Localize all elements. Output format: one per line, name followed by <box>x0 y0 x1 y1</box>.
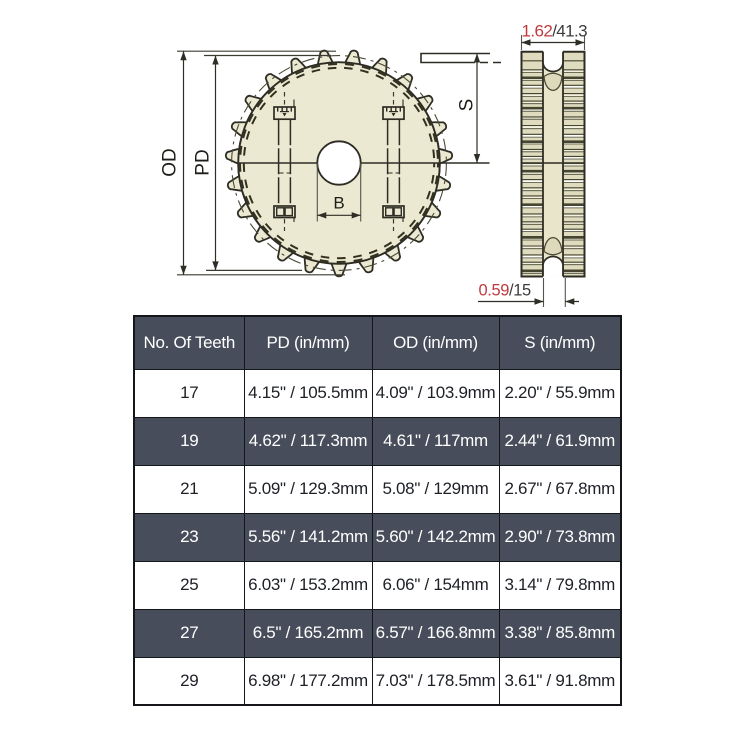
svg-text:1.62/41.3: 1.62/41.3 <box>522 22 588 41</box>
svg-text:PD: PD <box>193 149 214 175</box>
svg-text:S: S <box>457 99 478 112</box>
svg-text:OD: OD <box>160 148 181 177</box>
svg-text:B: B <box>333 194 344 213</box>
svg-text:0.59/15: 0.59/15 <box>479 282 531 300</box>
